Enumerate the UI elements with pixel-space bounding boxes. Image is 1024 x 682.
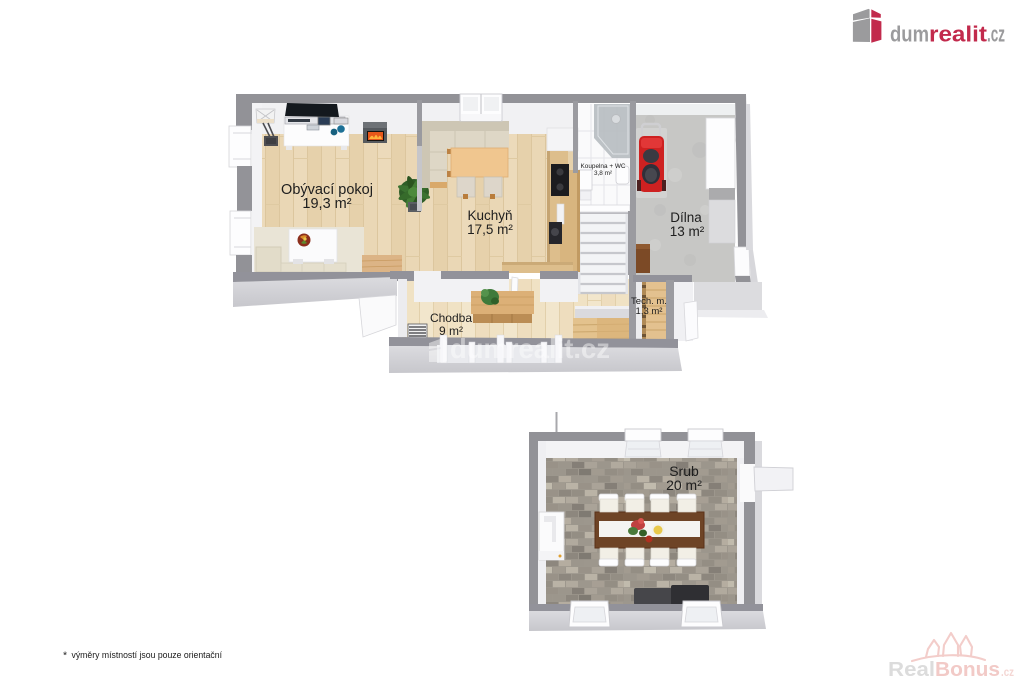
svg-text:.cz: .cz (1001, 665, 1014, 679)
svg-text:Bonus: Bonus (935, 659, 1000, 681)
svg-text:3,8 m²: 3,8 m² (594, 170, 612, 177)
svg-text:*: * (63, 650, 67, 662)
svg-text:Dílna: Dílna (670, 210, 702, 225)
svg-text:dumrealit.cz: dumrealit.cz (450, 333, 610, 364)
svg-text:1,3 m²: 1,3 m² (636, 306, 663, 317)
svg-text:20 m²: 20 m² (666, 477, 702, 493)
svg-text:Real: Real (888, 659, 935, 681)
svg-text:.cz: .cz (987, 22, 1005, 47)
svg-text:Chodba: Chodba (430, 311, 472, 325)
svg-text:Kuchyň: Kuchyň (467, 208, 512, 223)
svg-text:dum: dum (890, 22, 929, 47)
svg-text:realit: realit (929, 22, 988, 47)
svg-text:17,5 m²: 17,5 m² (467, 222, 513, 237)
svg-text:Koupelna + WC: Koupelna + WC (581, 163, 626, 170)
svg-text:výměry místností jsou pouze or: výměry místností jsou pouze orientační (72, 650, 223, 661)
svg-text:13 m²: 13 m² (670, 224, 705, 239)
svg-text:19,3 m²: 19,3 m² (302, 196, 351, 212)
